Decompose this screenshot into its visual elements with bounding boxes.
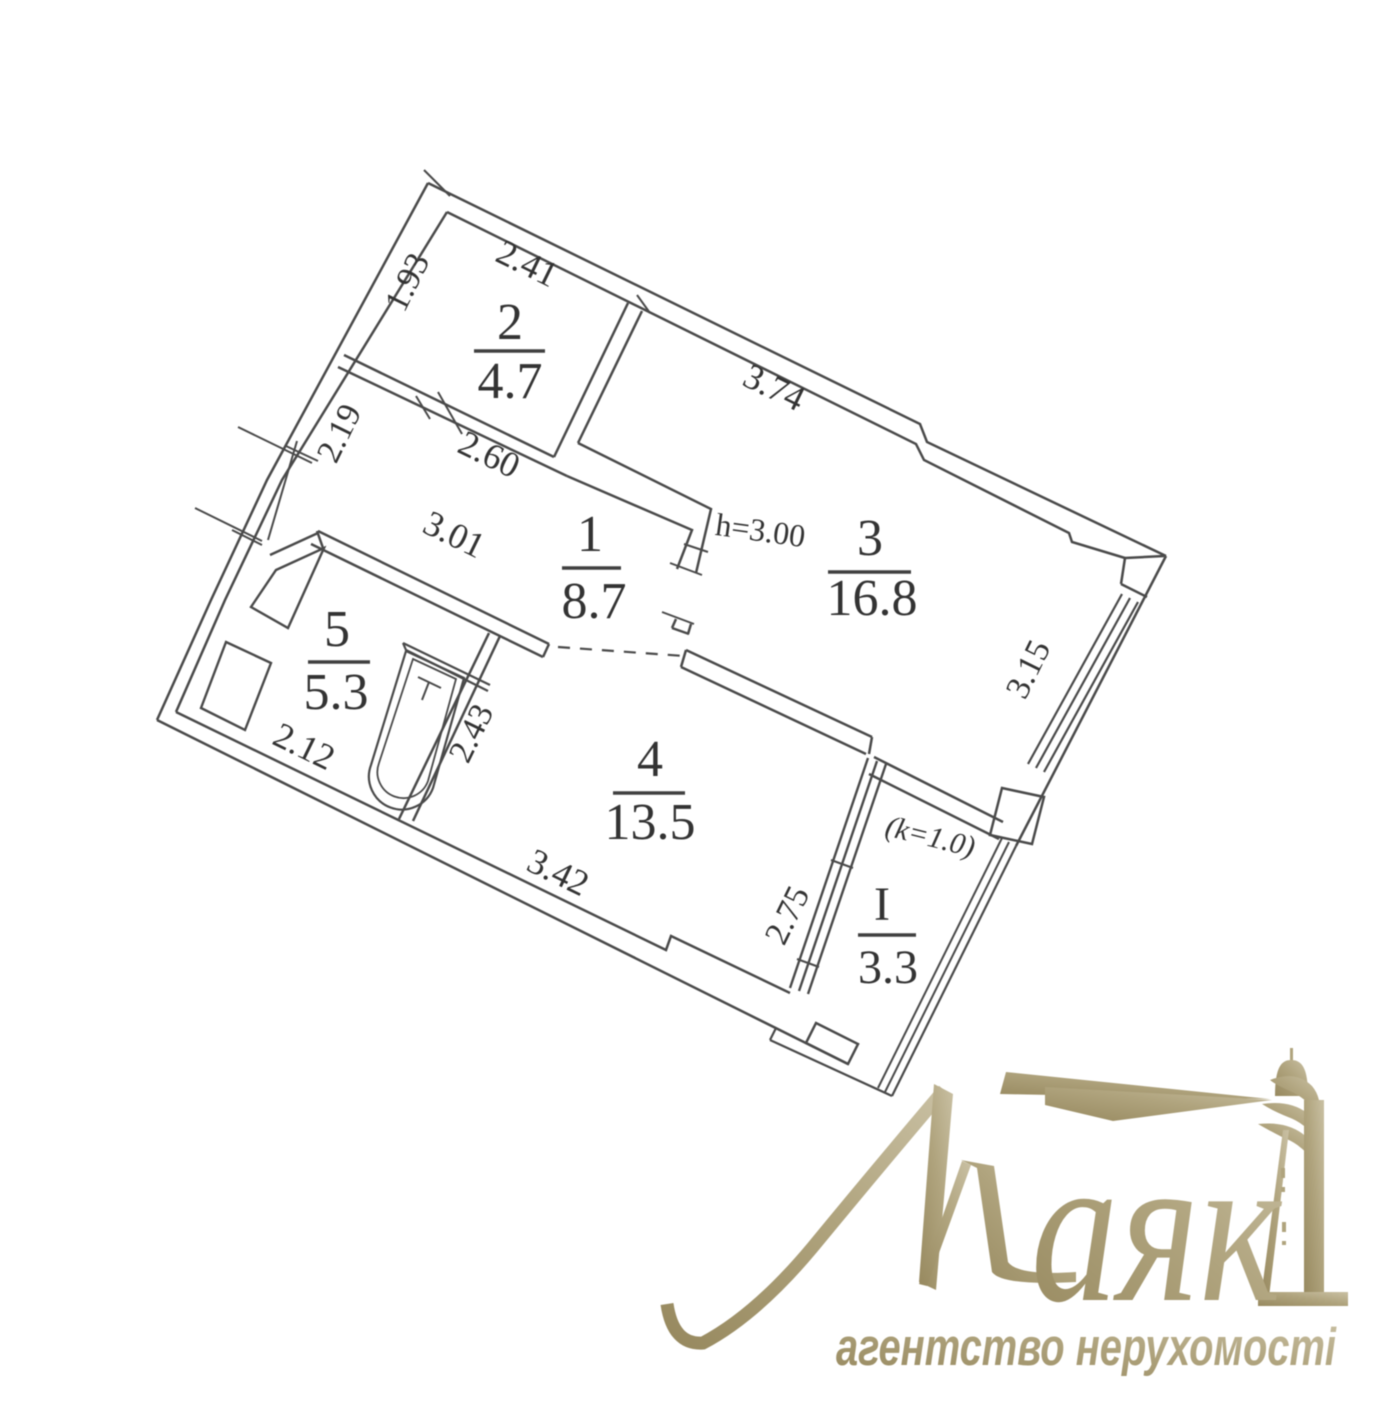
- svg-text:1: 1: [577, 506, 603, 563]
- svg-text:4.7: 4.7: [478, 353, 543, 410]
- svg-text:агентство нерухомості: агентство нерухомості: [836, 1318, 1337, 1377]
- svg-text:4: 4: [637, 731, 663, 788]
- svg-text:5: 5: [324, 601, 350, 658]
- svg-text:8.7: 8.7: [562, 573, 627, 630]
- svg-text:3: 3: [857, 510, 883, 567]
- svg-text:3.3: 3.3: [858, 941, 918, 994]
- svg-text:I: I: [874, 878, 890, 931]
- svg-text:аяк: аяк: [1031, 1108, 1282, 1347]
- svg-text:13.5: 13.5: [605, 794, 696, 851]
- svg-text:16.8: 16.8: [827, 570, 918, 627]
- svg-text:5.3: 5.3: [304, 664, 369, 721]
- svg-text:2: 2: [497, 294, 523, 351]
